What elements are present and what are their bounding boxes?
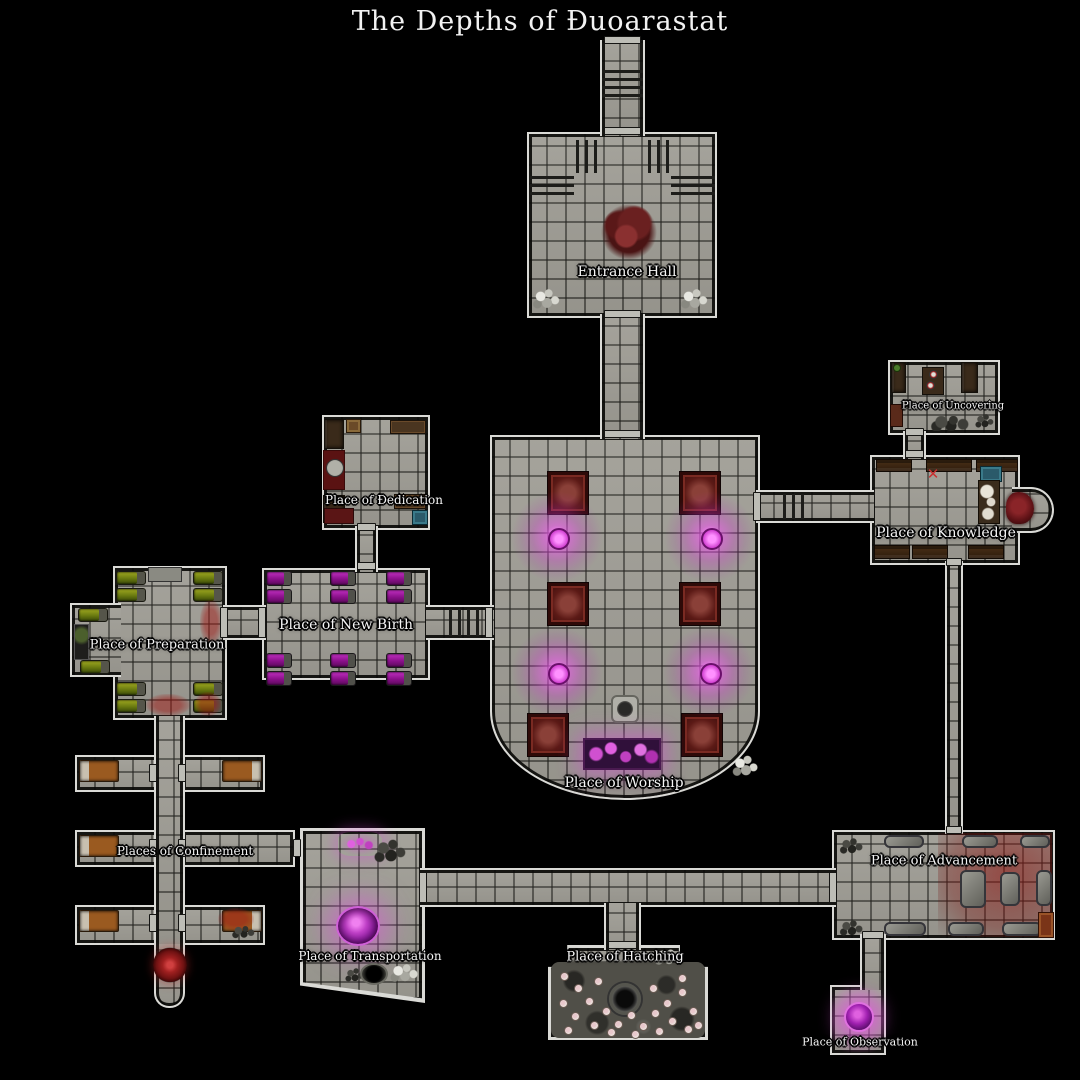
- magic-light-orb: [512, 492, 602, 582]
- table-wood: [390, 420, 426, 434]
- dungeon-map: ✕Entrance HallPlace of UncoveringPlace o…: [0, 0, 1080, 1080]
- egg: [627, 1011, 636, 1020]
- scrying-orb: [844, 1002, 874, 1032]
- purple-barrel: [386, 571, 412, 586]
- purple-barrel: [330, 571, 356, 586]
- stairs-icon: [671, 176, 715, 200]
- table-dark: [961, 362, 978, 393]
- label-place-of-knowledge: Place of Knowledge: [876, 525, 1016, 541]
- dot-green: [893, 364, 901, 372]
- label-place-of-new-birth: Place of New Birth: [279, 617, 413, 633]
- blood-altar: [548, 583, 588, 625]
- green-barrel: [116, 699, 146, 713]
- sarcophagus: [884, 835, 924, 848]
- egg: [678, 974, 687, 983]
- dungeon-map-viewport: The Depths of Đuoarastat ✕Entrance HallP…: [0, 0, 1080, 1080]
- magic-light-orb: [665, 492, 755, 582]
- green-barrel: [193, 571, 223, 585]
- map-title: The Depths of Đuoarastat: [0, 6, 1080, 37]
- door-icon: [419, 872, 427, 903]
- corridor-hall-to-worship: [600, 314, 645, 439]
- teleport-portal: [336, 906, 380, 946]
- corridor-advancement-to-observation: [860, 934, 886, 990]
- blood-altar: [528, 714, 568, 756]
- rubble-dark: [372, 836, 410, 866]
- rust-box: [1038, 912, 1054, 938]
- prison-bed: [222, 760, 262, 782]
- green-barrel: [116, 571, 146, 585]
- plate-red: [929, 370, 938, 379]
- purple-barrel: [266, 671, 292, 686]
- door-icon: [604, 310, 641, 318]
- stairs-icon: [783, 494, 809, 519]
- ritual-circle: [153, 947, 187, 983]
- table-grey: [148, 567, 182, 582]
- door-icon: [178, 764, 186, 782]
- purple-barrel: [386, 671, 412, 686]
- blood: [146, 694, 190, 716]
- egg: [559, 999, 568, 1008]
- hatching-pit: [609, 983, 641, 1015]
- arcane-altar: [583, 738, 661, 770]
- table-dark: [324, 419, 344, 449]
- door-icon: [604, 127, 641, 135]
- blood-altar: [680, 583, 720, 625]
- egg: [649, 984, 658, 993]
- rubble: [531, 286, 563, 312]
- shelf: [874, 545, 910, 559]
- egg: [678, 988, 687, 997]
- label-places-of-confinement: Places of Confinement: [117, 844, 253, 858]
- door-icon: [149, 914, 157, 932]
- rubble-dark: [230, 925, 258, 939]
- purple-barrel: [330, 589, 356, 604]
- door-icon: [608, 941, 637, 949]
- rubble-dark: [974, 412, 996, 430]
- egg: [571, 1012, 580, 1021]
- label-place-of-advancement: Place of Advancement: [871, 854, 1017, 869]
- green-barrel: [80, 660, 110, 674]
- egg: [684, 1025, 693, 1034]
- egg: [668, 1017, 677, 1026]
- corridor-knowledge-to-advancement: [945, 561, 963, 834]
- door-icon: [357, 562, 376, 570]
- label-place-of-dedication: Place of Đedication: [325, 493, 443, 507]
- egg: [585, 997, 594, 1006]
- egg: [689, 1007, 698, 1016]
- egg: [614, 1020, 623, 1029]
- egg: [631, 1030, 640, 1039]
- door-icon: [149, 764, 157, 782]
- plate-red: [926, 381, 935, 390]
- rubble: [388, 962, 422, 984]
- red-x-icon: ✕: [924, 466, 942, 484]
- sarcophagus: [1000, 872, 1020, 906]
- purple-barrel: [330, 653, 356, 668]
- door-icon: [220, 607, 228, 638]
- table-red: [324, 508, 354, 524]
- label-place-of-observation: Place of Observation: [802, 1036, 918, 1049]
- egg: [694, 1021, 703, 1030]
- purple-barrel: [386, 589, 412, 604]
- sarcophagus: [1036, 870, 1052, 906]
- door-icon: [485, 607, 493, 638]
- corridor-worship-to-knowledge: [756, 490, 874, 523]
- stairs-icon: [602, 70, 643, 98]
- door-icon: [905, 428, 924, 436]
- red-mass: [1006, 492, 1034, 524]
- egg: [574, 984, 583, 993]
- blood-altar: [682, 714, 722, 756]
- sarcophagus: [884, 922, 926, 936]
- corridor-long-hall: [420, 868, 836, 907]
- shelf: [912, 545, 948, 559]
- label-place-of-hatching: Place of Hatching: [566, 950, 683, 965]
- purple-barrel: [266, 589, 292, 604]
- door-icon: [604, 36, 641, 44]
- sarcophagus: [1002, 922, 1042, 936]
- label-place-of-preparation: Place of Preparation: [90, 638, 225, 653]
- egg: [602, 1007, 611, 1016]
- green-barrel: [78, 608, 108, 622]
- crate: [346, 419, 361, 433]
- door-icon: [178, 914, 186, 932]
- egg: [655, 1027, 664, 1036]
- blood: [195, 692, 221, 716]
- door-icon: [905, 450, 924, 458]
- egg: [560, 972, 569, 981]
- sarcophagus: [1020, 835, 1050, 848]
- stairs-icon: [449, 609, 483, 636]
- green-barrel: [116, 588, 146, 602]
- purple-barrel: [266, 571, 292, 586]
- shrine: [74, 624, 89, 660]
- egg: [651, 1009, 660, 1018]
- door-icon: [829, 872, 837, 903]
- hole: [360, 963, 388, 985]
- magic-light-orb: [512, 627, 602, 717]
- door-icon: [604, 430, 641, 438]
- label-entrance-hall: Entrance Hall: [577, 264, 676, 280]
- egg: [564, 1026, 573, 1035]
- door-icon: [258, 607, 266, 638]
- shelf: [876, 459, 912, 472]
- shelf: [968, 545, 1004, 559]
- stone-well: [611, 695, 639, 723]
- prison-bed: [79, 910, 119, 932]
- rubble-dark: [838, 836, 866, 856]
- stairs-icon: [648, 140, 670, 173]
- label-place-of-uncovering: Place of Uncovering: [902, 401, 1004, 412]
- rubble-dark: [927, 416, 975, 431]
- egg: [663, 999, 672, 1008]
- door-icon: [946, 826, 962, 834]
- door-icon: [357, 523, 376, 531]
- label-place-of-worship: Place of Worship: [564, 775, 683, 791]
- stairs-icon: [576, 140, 598, 173]
- egg: [639, 1022, 648, 1031]
- green-barrel: [116, 682, 146, 696]
- sarcophagus: [960, 870, 986, 908]
- round-table: [326, 459, 344, 477]
- door-icon: [946, 558, 962, 566]
- purple-barrel: [386, 653, 412, 668]
- sarcophagus: [948, 922, 984, 936]
- purple-barrel: [330, 671, 356, 686]
- rubble: [731, 752, 761, 780]
- crate-blue: [412, 510, 428, 525]
- purple-barrel: [266, 653, 292, 668]
- egg: [590, 1021, 599, 1030]
- door-icon: [293, 839, 301, 857]
- egg: [607, 1028, 616, 1037]
- stairs-icon: [530, 176, 574, 200]
- fallen-statue: [586, 189, 671, 274]
- label-place-of-transportation: Place of Transportation: [298, 949, 441, 963]
- prison-bed: [79, 835, 119, 857]
- sarcophagus: [962, 835, 998, 848]
- egg: [594, 977, 603, 986]
- table-papers: [978, 480, 1000, 524]
- door-icon: [862, 931, 884, 939]
- magic-light-orb: [664, 627, 754, 717]
- rubble: [679, 286, 711, 312]
- door-icon: [753, 492, 761, 521]
- prison-bed: [79, 760, 119, 782]
